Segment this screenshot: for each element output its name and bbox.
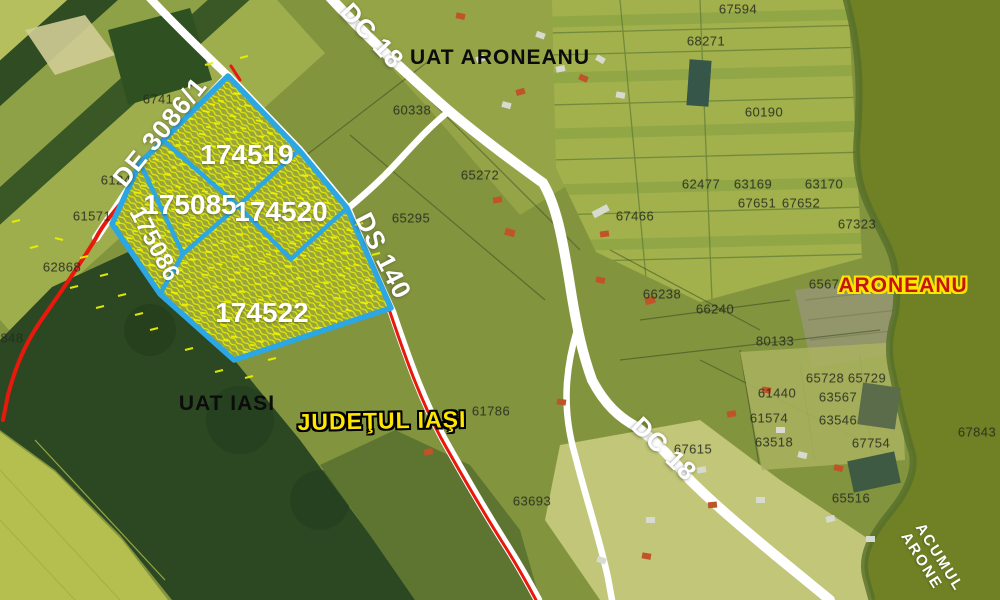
dark-plot: [686, 59, 711, 106]
fields-topright: [552, 0, 862, 302]
road-connector: [346, 112, 448, 210]
cadastral-map[interactable]: 6759468271601906033867416527265295624776…: [0, 0, 1000, 600]
fields-layer: [0, 0, 905, 600]
map-render: [0, 0, 1000, 600]
